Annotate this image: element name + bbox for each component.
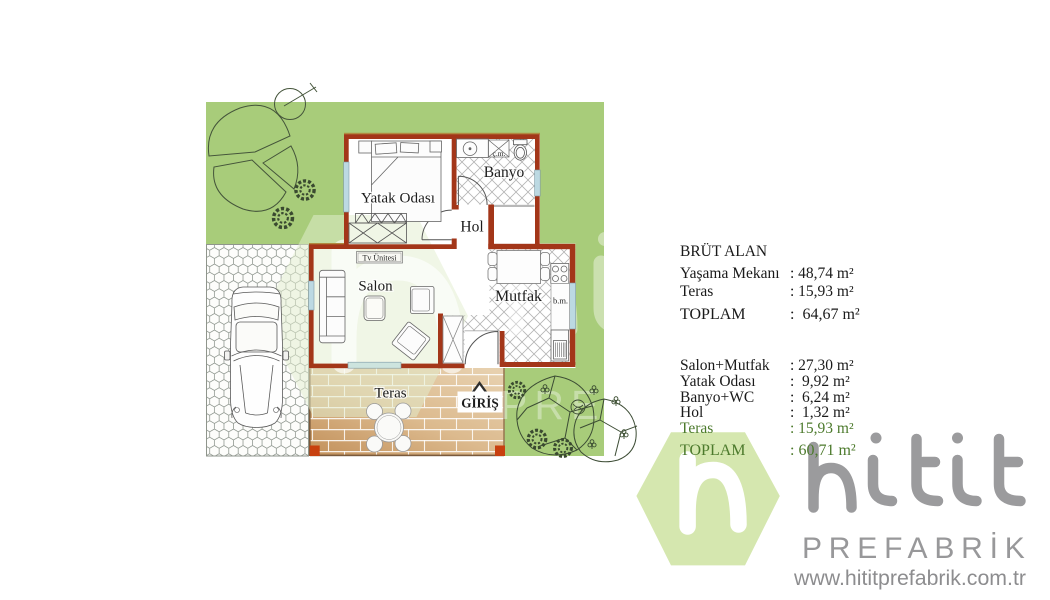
svg-text:: 48,74 m²: : 48,74 m²: [790, 265, 854, 282]
svg-text:: 1,32 m²: : 1,32 m²: [790, 404, 850, 421]
svg-text:GİRİŞ: GİRİŞ: [461, 396, 498, 411]
svg-text:Salon: Salon: [358, 279, 393, 295]
svg-text:www.hititprefabrik.com.tr: www.hititprefabrik.com.tr: [793, 566, 1026, 590]
svg-text:: 60,71 m²: : 60,71 m²: [790, 442, 856, 459]
svg-text:TOPLAM: TOPLAM: [680, 306, 746, 323]
svg-text:Hol: Hol: [460, 219, 483, 236]
svg-text:b.m.: b.m.: [553, 296, 568, 306]
svg-text:Yatak Odası: Yatak Odası: [680, 373, 756, 390]
svg-text:Teras: Teras: [680, 283, 713, 300]
svg-text:Banyo: Banyo: [484, 164, 525, 181]
svg-text:BRÜT ALAN: BRÜT ALAN: [680, 243, 767, 260]
svg-text:PREFABRİK: PREFABRİK: [802, 532, 1032, 565]
svg-text:Teras: Teras: [374, 386, 406, 402]
svg-text:Yatak Odası: Yatak Odası: [361, 190, 435, 207]
svg-text:TOPLAM: TOPLAM: [680, 442, 746, 459]
svg-text:Yaşama Mekanı: Yaşama Mekanı: [680, 265, 780, 282]
svg-text:: 27,30 m²: : 27,30 m²: [790, 357, 854, 374]
svg-text:: 9,92 m²: : 9,92 m²: [790, 373, 850, 390]
svg-text:: 15,93 m²: : 15,93 m²: [790, 283, 854, 300]
svg-text:Hol: Hol: [680, 404, 703, 421]
svg-text:Mutfak: Mutfak: [495, 288, 542, 305]
svg-text:: 64,67 m²: : 64,67 m²: [790, 306, 860, 323]
svg-text:ç.m.: ç.m.: [493, 149, 506, 158]
svg-text:Tv Ünitesi: Tv Ünitesi: [363, 253, 398, 262]
svg-text:Salon+Mutfak: Salon+Mutfak: [680, 357, 770, 374]
svg-text:Teras: Teras: [680, 420, 713, 437]
svg-text:: 15,93 m²: : 15,93 m²: [790, 420, 854, 437]
